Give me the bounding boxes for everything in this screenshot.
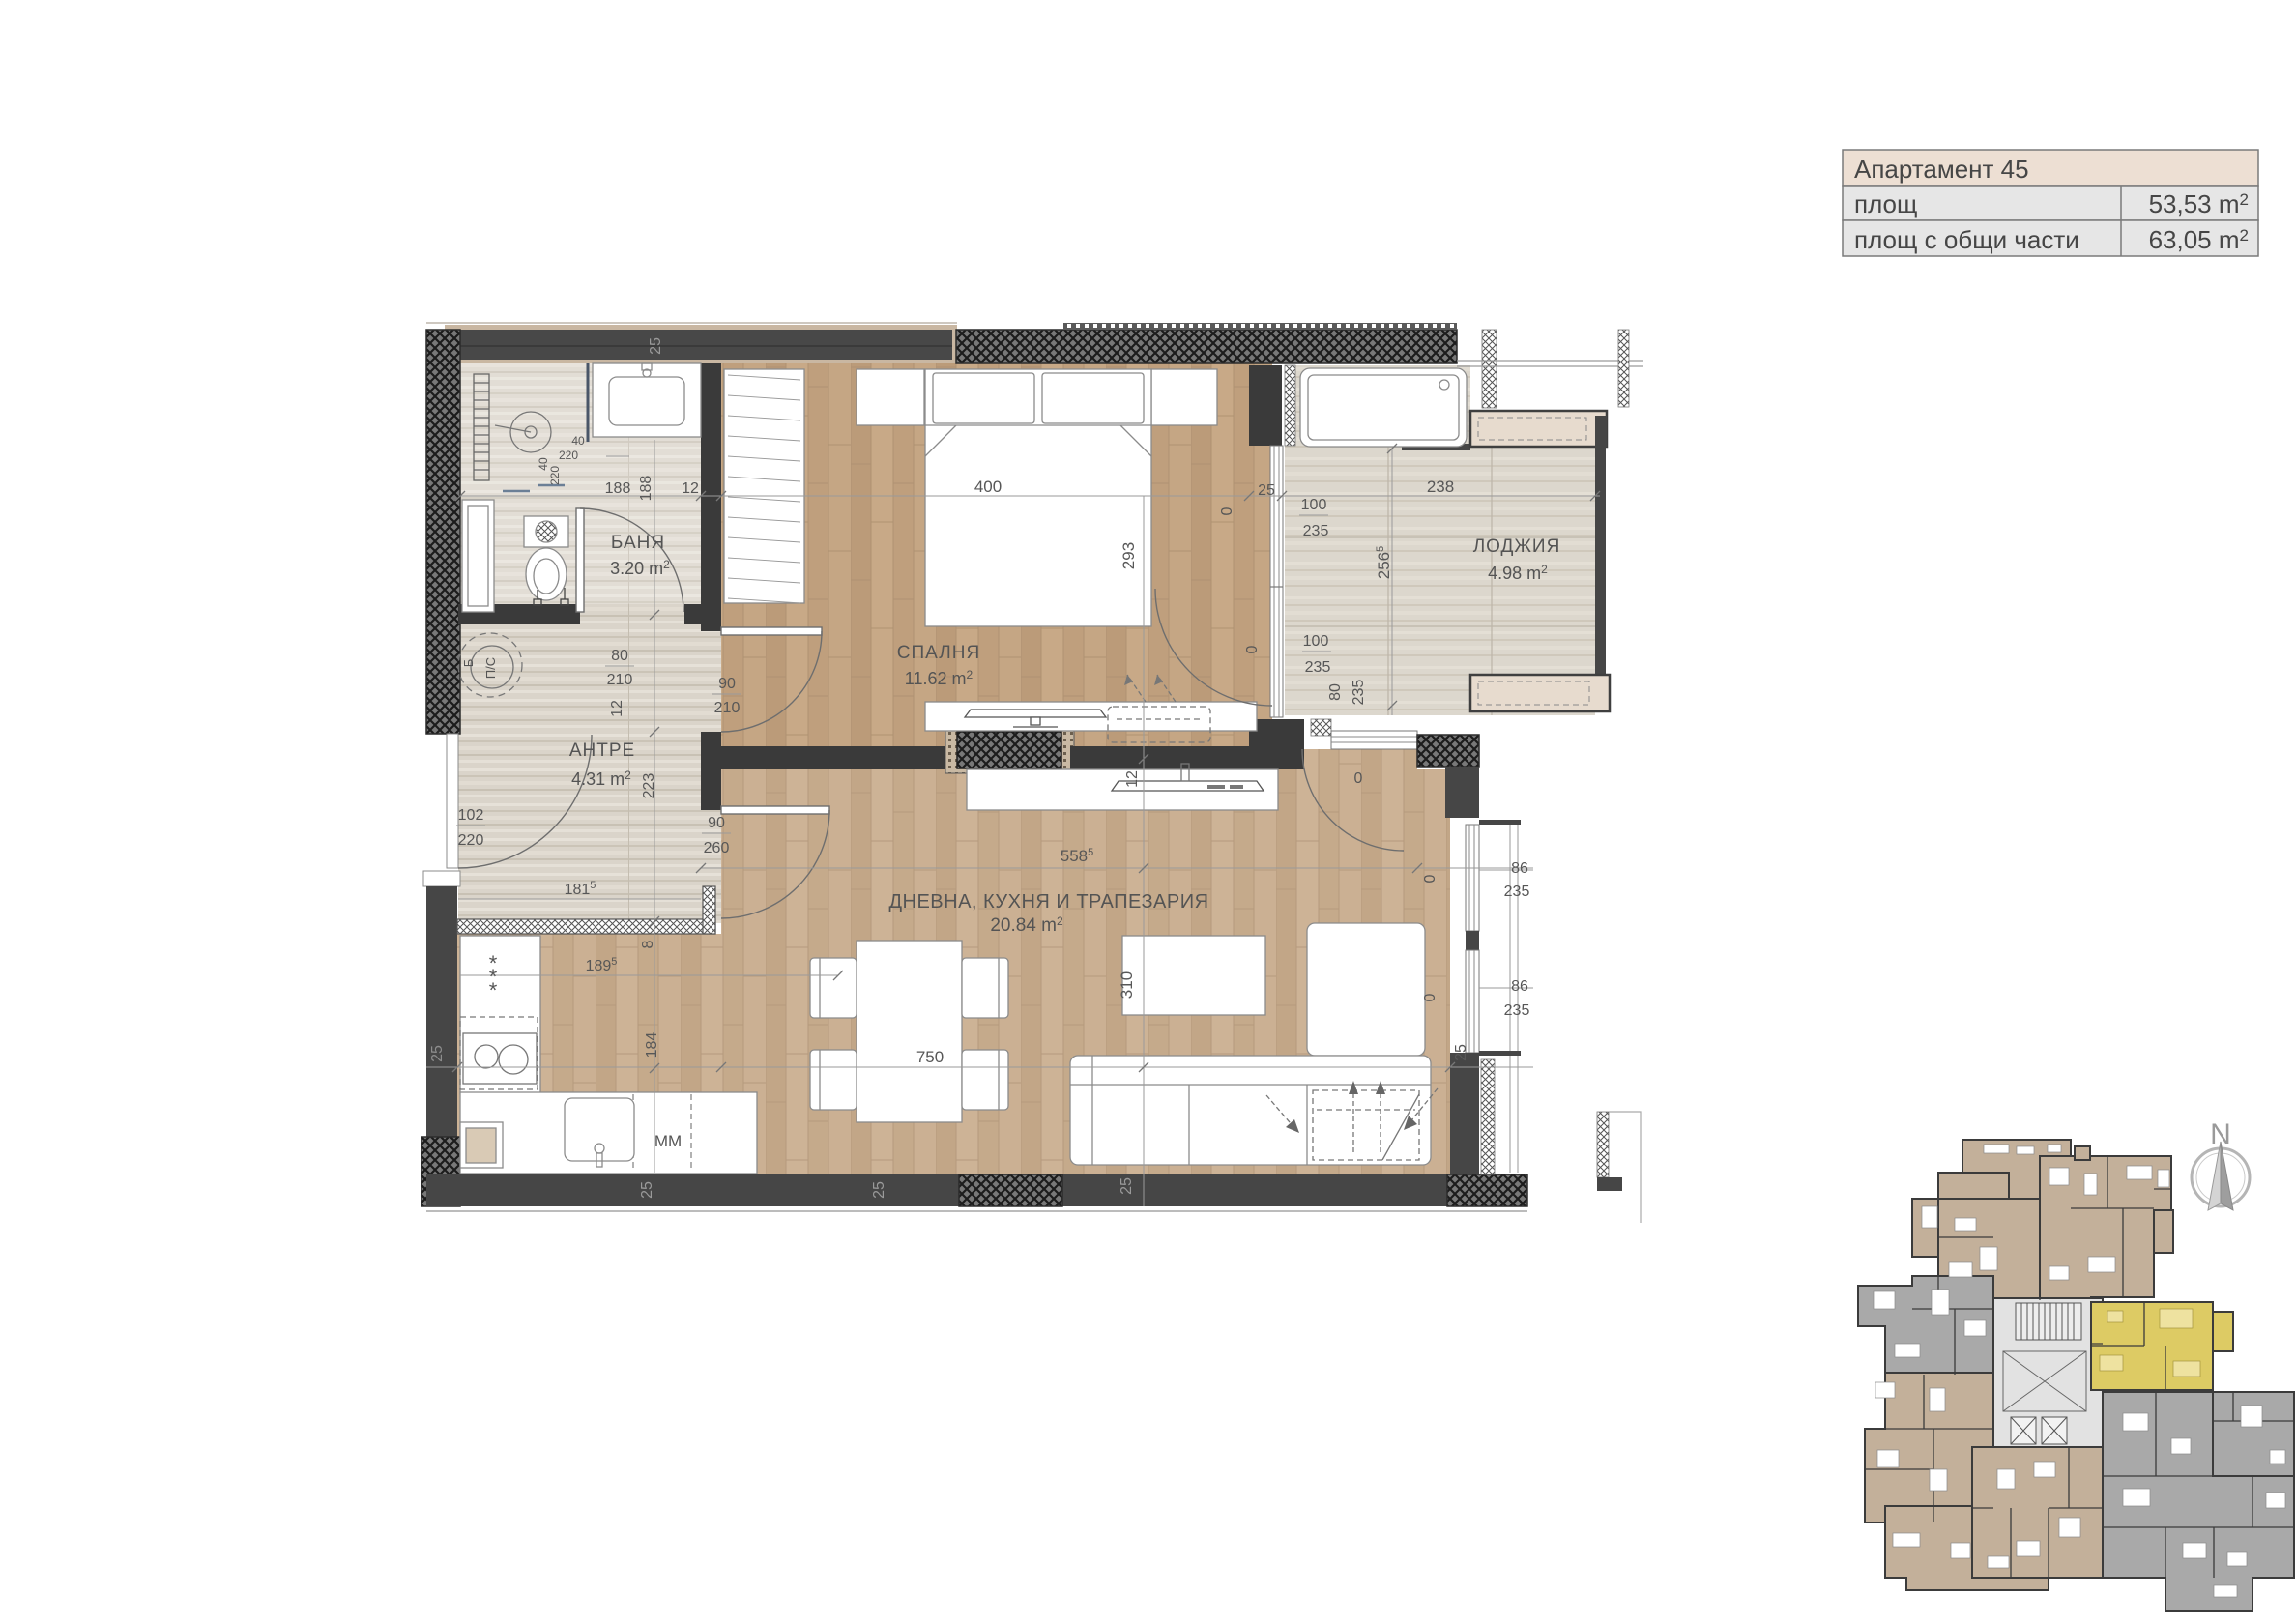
svg-text:220: 220	[548, 466, 562, 485]
svg-text:П/С: П/С	[483, 657, 498, 679]
svg-text:0: 0	[1422, 874, 1439, 883]
svg-text:223: 223	[641, 773, 657, 799]
svg-text:25: 25	[648, 337, 664, 355]
svg-text:220: 220	[559, 449, 578, 462]
svg-text:235: 235	[1303, 523, 1329, 539]
svg-text:86: 86	[1511, 978, 1528, 995]
svg-text:25: 25	[1258, 482, 1275, 499]
svg-text:25: 25	[1453, 1044, 1469, 1061]
svg-text:Б: Б	[461, 659, 476, 668]
svg-text:40: 40	[571, 434, 585, 448]
svg-text:260: 260	[704, 840, 730, 856]
svg-text:235: 235	[1504, 884, 1530, 900]
svg-text:63,05 m2: 63,05 m2	[2149, 225, 2249, 254]
svg-text:220: 220	[458, 832, 484, 849]
svg-text:80: 80	[1327, 683, 1344, 701]
svg-text:БАНЯ: БАНЯ	[611, 533, 665, 553]
svg-text:80: 80	[611, 648, 628, 664]
svg-text:4.31 m2: 4.31 m2	[571, 768, 631, 789]
svg-text:25: 25	[871, 1181, 887, 1199]
svg-text:293: 293	[1119, 542, 1138, 569]
svg-text:235: 235	[1305, 659, 1331, 676]
svg-text:90: 90	[718, 676, 736, 692]
svg-text:3.20 m2: 3.20 m2	[610, 558, 670, 578]
svg-text:N: N	[2210, 1118, 2231, 1150]
svg-text:235: 235	[1504, 1002, 1530, 1019]
svg-text:СПАЛНЯ: СПАЛНЯ	[897, 643, 980, 663]
svg-text:100: 100	[1301, 497, 1327, 513]
svg-text:25: 25	[1119, 1177, 1135, 1195]
svg-text:12: 12	[682, 480, 699, 497]
svg-text:210: 210	[714, 700, 741, 716]
svg-text:0: 0	[1219, 507, 1235, 515]
svg-text:53,53 m2: 53,53 m2	[2149, 189, 2249, 218]
svg-text:0: 0	[1422, 993, 1439, 1001]
svg-text:184: 184	[644, 1032, 660, 1058]
svg-text:86: 86	[1511, 860, 1528, 877]
svg-text:АНТРЕ: АНТРЕ	[569, 740, 635, 761]
svg-text:Апартамент 45: Апартамент 45	[1854, 155, 2029, 184]
svg-text:12: 12	[609, 700, 625, 717]
svg-text:20.84 m2: 20.84 m2	[990, 914, 1063, 936]
svg-text:235: 235	[1351, 680, 1367, 706]
svg-text:188: 188	[638, 476, 654, 502]
svg-text:12: 12	[1124, 770, 1141, 788]
svg-text:0: 0	[1354, 770, 1363, 787]
svg-text:188: 188	[605, 480, 631, 497]
svg-text:100: 100	[1303, 633, 1329, 650]
svg-text:210: 210	[607, 672, 633, 688]
svg-text:750: 750	[916, 1048, 944, 1066]
svg-text:102: 102	[458, 807, 484, 824]
svg-text:ЛОДЖИЯ: ЛОДЖИЯ	[1473, 536, 1561, 557]
svg-text:4.98 m2: 4.98 m2	[1488, 563, 1548, 583]
svg-text:25: 25	[639, 1181, 655, 1199]
svg-text:MM: MM	[654, 1132, 682, 1150]
svg-text:400: 400	[974, 478, 1002, 496]
svg-text:25: 25	[429, 1045, 446, 1062]
svg-text:238: 238	[1427, 478, 1454, 496]
svg-text:ДНЕВНА, КУХНЯ И ТРАПЕЗАРИЯ: ДНЕВНА, КУХНЯ И ТРАПЕЗАРИЯ	[888, 891, 1208, 913]
svg-text:площ с общи части: площ с общи части	[1854, 225, 2079, 254]
svg-text:90: 90	[708, 815, 725, 831]
svg-text:0: 0	[1244, 645, 1261, 653]
svg-text:площ: площ	[1854, 189, 1917, 218]
svg-text:11.62 m2: 11.62 m2	[905, 668, 974, 688]
svg-text:*: *	[489, 978, 498, 1002]
svg-text:310: 310	[1118, 971, 1136, 999]
svg-text:8: 8	[640, 940, 656, 948]
